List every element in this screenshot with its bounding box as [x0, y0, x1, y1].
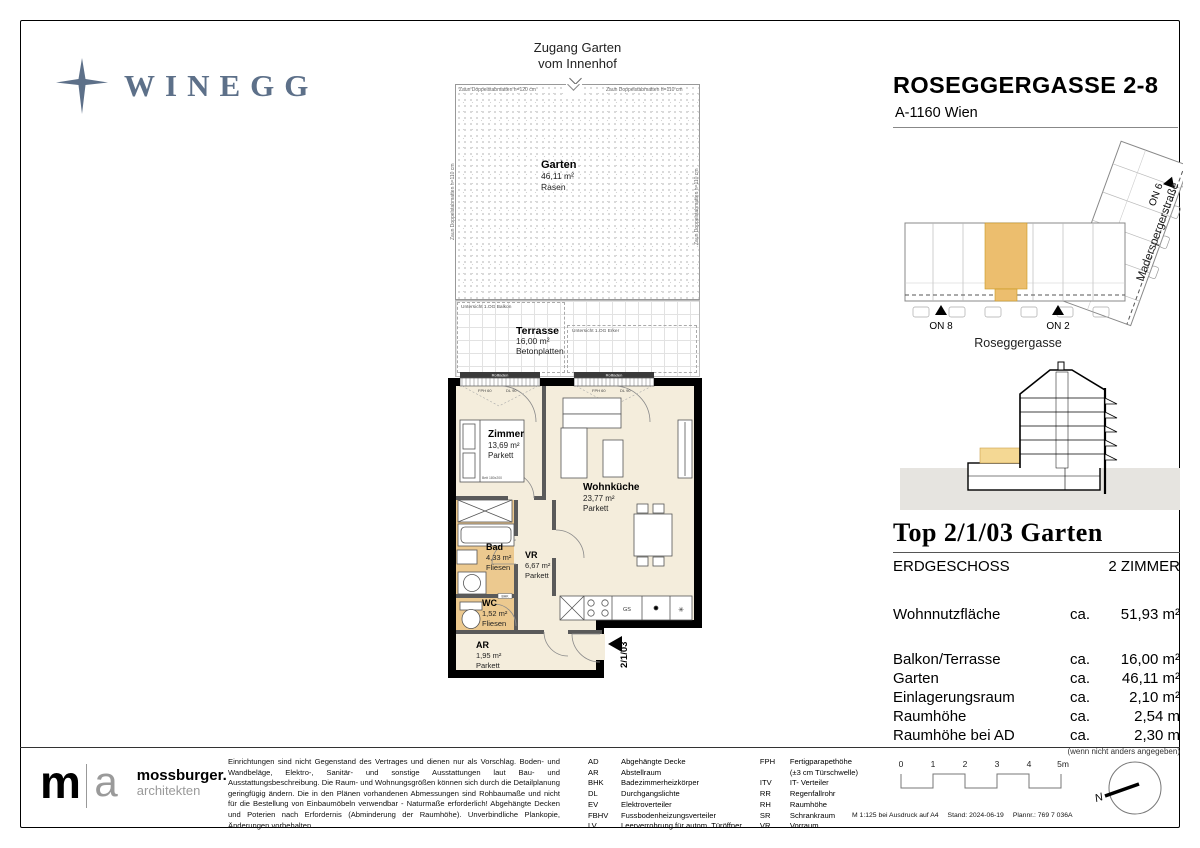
site-plan: ON 6 ON 8 ON 2 Roseggergasse Maderspe: [893, 133, 1183, 355]
garden-gate: [566, 84, 582, 95]
unit-floor: ERDGESCHOSS: [893, 558, 1010, 575]
fence-label-top-left: Zaun Doppelstabmatten h=120 cm: [459, 87, 536, 93]
logo-m: m: [40, 762, 79, 802]
svg-text:FPH 60: FPH 60: [478, 388, 492, 393]
north-letter: N: [1093, 791, 1104, 805]
svg-text:DL 90: DL 90: [620, 388, 631, 393]
architect-sub: architekten: [137, 783, 227, 798]
garden-access-label: Zugang Garten vom Innenhof: [455, 40, 700, 72]
untersicht-erker-outline: Untersicht 1.OG Erker: [567, 325, 697, 373]
spec-row-einlagerungsraum: Einlagerungsraumca.2,10 m²: [893, 688, 1180, 707]
footer-divider: [20, 747, 1180, 748]
spec-row-balkon-terrasse: Balkon/Terrasseca.16,00 m²: [893, 650, 1180, 669]
storage-box: [458, 500, 512, 522]
entry-marker: 2/1/03: [608, 636, 630, 668]
spec-row-raumhoehe-ad: Raumhöhe bei ADca.2,30 m: [893, 726, 1180, 745]
dishwasher-label: GS: [623, 607, 631, 613]
street-label-roseggergasse: Roseggergasse: [974, 336, 1062, 350]
logo-divider: [86, 764, 88, 808]
svg-text:Rollladen: Rollladen: [492, 373, 509, 378]
stove-burner: [602, 600, 608, 606]
window-wohnkueche: [574, 378, 654, 386]
on8-entrance-arrow: [935, 305, 947, 315]
cooktop-symbol: ✳: [678, 606, 684, 614]
fence-label-right: Zaun Doppelstabmatten h=110 cm: [694, 169, 700, 245]
svg-text:FPH 60: FPH 60: [592, 388, 606, 393]
north-arrow: N: [1093, 756, 1173, 828]
room-label-vr: VR 6,67 m² Parkett: [525, 550, 550, 582]
project-title: ROSEGGERGASSE 2-8: [893, 72, 1158, 99]
svg-text:0: 0: [899, 759, 904, 769]
sink-dot: [654, 606, 658, 610]
print-info: M 1:125 bei Ausdruck auf A4 Stand: 2024-…: [852, 812, 1080, 819]
svg-text:DL 90: DL 90: [506, 388, 517, 393]
architect-logo: m a mossburger. architekten: [40, 762, 227, 808]
svg-text:3: 3: [995, 759, 1000, 769]
unit-note: (wenn nicht anders angegeben): [893, 747, 1180, 756]
untersicht-balkon-label: Untersicht 1.OG Balkon: [461, 305, 511, 310]
svg-text:2/1/03: 2/1/03: [619, 642, 630, 668]
print-scale: M 1:125 bei Ausdruck auf A4: [852, 812, 939, 819]
stove-burner: [588, 600, 594, 606]
window-zimmer: [460, 378, 540, 386]
balconies: [1105, 398, 1117, 460]
svg-text:1: 1: [931, 759, 936, 769]
logo-a: a: [94, 762, 117, 802]
entry-opening: [595, 634, 605, 660]
stove-burner: [588, 610, 594, 616]
north-circle: [1109, 762, 1161, 814]
wardrobe: [678, 420, 692, 478]
legend-column-left: ADAbgehängte Decke ARAbstellraum BHKBade…: [588, 757, 742, 832]
fence-label-left: Zaun Doppelstabmatten h=110 cm: [450, 164, 456, 240]
washing-machine: [458, 572, 486, 594]
terrace-label: Terrasse 16,00 m² Betonplatten: [516, 326, 564, 356]
garden-label: Garten 46,11 m² Rasen: [541, 160, 576, 193]
room-label-bad: Bad 4,33 m² Fliesen: [486, 542, 511, 574]
scale-ticks: 0 1 2 3 4 5m: [899, 759, 1069, 769]
scale-bar: 0 1 2 3 4 5m: [893, 756, 1083, 800]
title-divider: [893, 127, 1178, 128]
on2-entrance-arrow: [1052, 305, 1064, 315]
on8-label: ON 8: [929, 321, 953, 332]
unit-info: Top 2/1/03 Garten ERDGESCHOSS 2 ZIMMER W…: [893, 518, 1180, 756]
unit-rooms: 2 ZIMMER: [1108, 558, 1180, 575]
coffee-table: [603, 440, 623, 477]
washbasin: [457, 550, 477, 564]
building-section: [900, 360, 1180, 510]
brand-name: WINEGG: [124, 68, 318, 104]
room-label-zimmer: Zimmer 13,69 m² Parkett: [488, 430, 524, 462]
garden-area: [455, 84, 700, 300]
print-stand: Stand: 2024-06-19: [948, 812, 1004, 819]
room-label-ar: AR 1,95 m² Parkett: [476, 640, 501, 672]
highlighted-unit: [985, 223, 1027, 289]
roller-shutter-boxes: Rollladen Rollladen: [460, 372, 654, 378]
scale-meander: [901, 774, 1061, 788]
winegg-star-icon: [56, 58, 108, 114]
stove-burner: [602, 610, 608, 616]
toilet: [460, 602, 482, 629]
winegg-logo: WINEGG: [56, 58, 318, 114]
spec-row-garten: Gartenca.46,11 m²: [893, 669, 1180, 688]
spec-row-raumhoehe: Raumhöheca.2,54 m: [893, 707, 1180, 726]
unit-spec-table: Wohnnutzflächeca.51,93 m² Balkon/Terrass…: [893, 605, 1180, 756]
bed-size-label: Bett 180x200: [482, 476, 502, 480]
unit-title: Top 2/1/03 Garten: [893, 518, 1180, 553]
highlighted-unit-entry: [995, 289, 1017, 301]
project-city: A-1160 Wien: [895, 105, 978, 121]
svg-text:Rollladen: Rollladen: [606, 373, 623, 378]
svg-text:2: 2: [963, 759, 968, 769]
disclaimer-text: Einrichtungen sind nicht Gegenstand des …: [228, 757, 560, 831]
svg-text:4: 4: [1027, 759, 1032, 769]
spec-row-wohnnutzflaeche: Wohnnutzflächeca.51,93 m²: [893, 605, 1180, 624]
fence-label-top-right: Zaun Doppelstabmatten h=110 cm: [606, 87, 682, 93]
room-label-wohnkueche: Wohnküche 23,77 m² Parkett: [583, 483, 639, 515]
architect-name: mossburger.: [137, 768, 227, 783]
on2-label: ON 2: [1046, 321, 1070, 332]
legend-column-right: FPHFertigparapethöhe (±3 cm Türschwelle)…: [760, 757, 858, 832]
site-wing-left: [905, 223, 1125, 301]
plan-sheet: WINEGG Zugang Garten vom Innenhof Zaun D…: [0, 0, 1200, 848]
gate-chevron-icon: [567, 84, 580, 91]
untersicht-erker-label: Untersicht 1.OG Erker: [572, 329, 619, 334]
print-plannr: Plannr.: 769 7 036A: [1013, 812, 1073, 819]
room-label-wc: WC 1,52 m² Fliesen: [482, 598, 507, 630]
svg-text:5m: 5m: [1057, 759, 1069, 769]
abbreviation-legend: ADAbgehängte Decke ARAbstellraum BHKBade…: [588, 757, 858, 832]
apartment-floorplan: Rollladen Rollladen: [448, 372, 702, 684]
